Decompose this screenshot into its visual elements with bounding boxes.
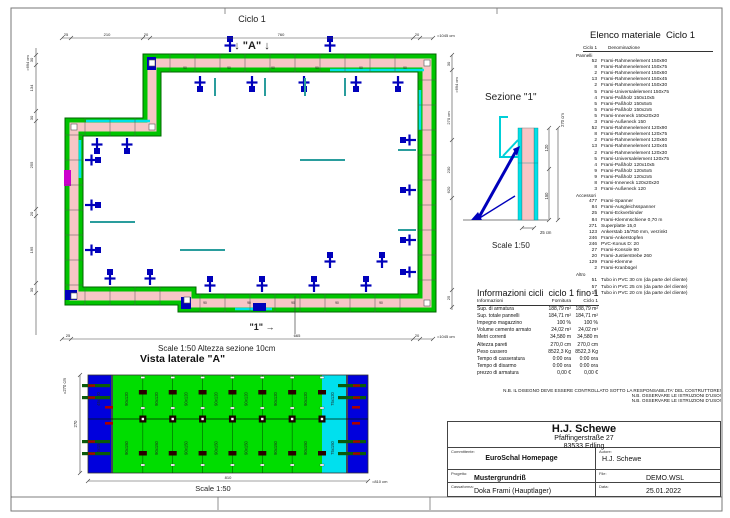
lateral-view: 90x12090x15090x12090x15090x12090x15090x1… <box>62 373 388 493</box>
svg-text:90: 90 <box>403 66 407 70</box>
tie-symbol <box>400 235 416 246</box>
info-col-ciclo: Ciclo 1 <box>571 298 598 305</box>
svg-text:90: 90 <box>227 66 231 70</box>
lateral-scale: Scale 1:50 <box>195 484 230 493</box>
title-block-header: H.J. Schewe Pfaffingerstraße 27 83533 Ed… <box>448 422 720 448</box>
svg-text:90: 90 <box>379 301 383 305</box>
svg-text:760: 760 <box>278 32 285 37</box>
cycle-info-row: Sup. di armatura188,79 m²188,79 m² <box>477 306 599 313</box>
svg-text:20: 20 <box>415 32 420 37</box>
section-1-marker: "1" → <box>249 322 274 332</box>
svg-text:90x150: 90x150 <box>273 440 278 454</box>
tie-symbol <box>85 155 101 166</box>
wall-concrete <box>74 63 427 303</box>
svg-text:=1045 cm: =1045 cm <box>437 33 455 38</box>
project-cell: Progetto: Mustergrundriß <box>448 470 595 483</box>
tie-symbol <box>105 269 116 285</box>
svg-text:90: 90 <box>335 301 339 305</box>
dim-bottom-labels: 25 665 20 =1045 cm <box>66 333 456 339</box>
svg-text:20: 20 <box>144 32 149 37</box>
lateral-dim-left <box>78 373 82 475</box>
material-list: Elenco materiale Ciclo 1 Ciclo 1 Denomin… <box>576 30 726 297</box>
tie-symbol <box>85 200 101 211</box>
svg-text:90x150: 90x150 <box>124 440 129 454</box>
dim-top-labels: 25 210 20 760 20 =1045 cm <box>64 32 456 38</box>
svg-text:90: 90 <box>315 66 319 70</box>
magenta-element <box>64 170 71 186</box>
dim-left-line <box>34 48 38 335</box>
wall-section <box>522 128 534 220</box>
sezione-dim-labels: 120 150 270 cm 25 cm <box>540 113 565 235</box>
svg-text:210: 210 <box>104 32 111 37</box>
tie-symbol <box>400 267 416 278</box>
formwork-right <box>534 128 538 220</box>
svg-text:90x120: 90x120 <box>243 391 248 405</box>
tie-symbol <box>247 76 258 92</box>
panel-joint-ticks <box>65 54 436 312</box>
wall-formwork-green <box>74 63 427 303</box>
svg-text:=694 cm: =694 cm <box>454 77 459 93</box>
brace-lines <box>90 78 416 250</box>
svg-text:90x150: 90x150 <box>154 440 159 454</box>
file-value: DEMO.WSL <box>596 470 720 482</box>
formwork-cell: Cassaforma: Doka Frami (Hauptlager) <box>448 483 595 496</box>
svg-text:25: 25 <box>446 295 451 300</box>
svg-text:20: 20 <box>29 211 34 216</box>
file-cell: File: DEMO.WSL <box>596 470 720 483</box>
cycle-info-header: Informazioni Fornitura Ciclo 1 <box>477 298 599 306</box>
svg-text:=694 cm: =694 cm <box>25 55 30 71</box>
svg-text:25 cm: 25 cm <box>540 230 552 235</box>
project-value: Mustergrundriß <box>448 470 595 482</box>
tie-symbol <box>122 138 133 154</box>
cycle-info-row: Volume cemento armato24,02 m³24,02 m³ <box>477 327 599 334</box>
blue-end-block-4 <box>253 303 266 311</box>
svg-text:90x120: 90x120 <box>154 391 159 405</box>
panel-width-labels: 9090909090909090909090 <box>183 66 407 305</box>
svg-text:25: 25 <box>64 32 69 37</box>
info-col-fornitura: Fornitura <box>541 298 571 305</box>
svg-text:230: 230 <box>446 166 451 173</box>
wall-formwork-edge <box>74 63 427 303</box>
svg-text:90x150: 90x150 <box>303 440 308 454</box>
svg-text:90x150: 90x150 <box>214 440 219 454</box>
svg-text:134: 134 <box>29 84 34 91</box>
tie-symbol <box>361 276 372 292</box>
svg-text:150: 150 <box>544 192 549 200</box>
cycle-info-rows: Sup. di armatura188,79 m²188,79 m²Sup. t… <box>477 306 599 377</box>
sezione-view: Sezione "1" <box>463 92 565 250</box>
svg-text:90: 90 <box>203 301 207 305</box>
title-block: H.J. Schewe Pfaffingerstraße 27 83533 Ed… <box>447 421 721 497</box>
wall-tie-symbols <box>85 36 416 292</box>
project-label: Progetto: <box>451 471 467 476</box>
cycle-info-row: Sup. totale pannelli184,71 m²184,71 m² <box>477 313 599 320</box>
warning-notes: N.B. IL DISEGNO DEVE ESSERE CONTROLLATO … <box>421 388 721 404</box>
svg-text:90: 90 <box>183 66 187 70</box>
svg-text:=1045 cm: =1045 cm <box>437 334 455 339</box>
client-label: Committente: <box>451 449 475 454</box>
svg-text:30: 30 <box>446 61 451 66</box>
tie-symbol <box>400 135 416 146</box>
tie-symbol <box>205 276 216 292</box>
svg-text:270 cm: 270 cm <box>560 113 565 127</box>
client-value: EuroSchal Homepage <box>485 455 557 462</box>
date-label: Data: <box>599 484 609 489</box>
svg-text:90: 90 <box>247 301 251 305</box>
tie-symbol <box>377 252 388 268</box>
svg-text:90x150: 90x150 <box>184 440 189 454</box>
lateral-height-seg: 270 <box>73 420 78 428</box>
svg-text:620: 620 <box>446 186 451 193</box>
tie-symbol <box>400 185 416 196</box>
material-list-header: Ciclo 1 Denominazione <box>583 45 713 52</box>
svg-text:120: 120 <box>544 144 549 152</box>
tie-symbol <box>257 276 268 292</box>
material-list-title: Elenco materiale Ciclo 1 <box>590 30 726 41</box>
svg-text:270 cm: 270 cm <box>446 111 451 125</box>
cycle-info-row: Metri correnti34,580 m34,580 m <box>477 334 599 341</box>
lateral-height-total: =270 cm <box>62 377 67 394</box>
drawing-sheet: Ciclo 1 ↓ "A" ↓ 9090909090909090909090 <box>0 0 730 518</box>
svg-text:90x120: 90x120 <box>184 391 189 405</box>
dim-right-labels: 30 270 cm 230 620 25 =694 cm <box>446 61 459 300</box>
svg-text:75x150: 75x150 <box>330 440 335 454</box>
material-col-name: Denominazione <box>608 45 640 50</box>
tie-symbol <box>92 138 103 154</box>
cycle-info-row: Impegno magazzino100 %100 % <box>477 320 599 327</box>
cycle-info-row: Tempo di casseratura0:00 ora0:00 ora <box>477 356 599 363</box>
formwork-label: Cassaforma: <box>451 484 474 489</box>
corner-anchors <box>71 60 430 306</box>
tie-symbol <box>309 276 320 292</box>
company-address1: Pfaffingerstraße 27 <box>448 435 720 443</box>
svg-text:30: 30 <box>29 115 34 120</box>
cycle-info-row: Altezza pareti270,0 cm270,0 cm <box>477 342 599 349</box>
date-cell: Data: 25.01.2022 <box>596 483 720 496</box>
svg-text:90x120: 90x120 <box>273 391 278 405</box>
tie-symbol <box>325 252 336 268</box>
tie-symbol <box>393 76 404 92</box>
company-name: H.J. Schewe <box>448 422 720 435</box>
svg-text:75x120: 75x120 <box>330 391 335 405</box>
client-cell: Committente: EuroSchal Homepage <box>448 448 595 470</box>
svg-text:90x150: 90x150 <box>243 440 248 454</box>
lateral-width: 810 <box>225 475 232 480</box>
svg-text:20: 20 <box>415 333 420 338</box>
info-col-label: Informazioni <box>477 298 541 305</box>
lateral-width-total: =810 cm <box>372 479 388 484</box>
date-value: 25.01.2022 <box>596 483 720 495</box>
cycle-info-row: Peso cassero8522,3 Kg8522,3 Kg <box>477 349 599 356</box>
svg-text:255: 255 <box>29 161 34 168</box>
tie-symbol <box>195 76 206 92</box>
dim-bottom-line <box>60 337 435 341</box>
svg-text:90x120: 90x120 <box>124 391 129 405</box>
plan-view: Ciclo 1 ↓ "A" ↓ 9090909090909090909090 <box>25 14 459 353</box>
plan-title: Ciclo 1 <box>238 14 266 24</box>
tie-symbol <box>145 269 156 285</box>
svg-text:90: 90 <box>291 301 295 305</box>
tie-symbol <box>85 245 101 256</box>
svg-text:25: 25 <box>66 333 71 338</box>
push-pull-props <box>471 146 520 220</box>
tie-symbol <box>351 76 362 92</box>
sezione-scale: Scale 1:50 <box>492 241 530 250</box>
material-col-cycle: Ciclo 1 <box>583 45 601 50</box>
cycle-info: Informazioni cicli ciclo 1 fino 1 Inform… <box>477 288 599 377</box>
author-cell: Autore: H.J. Schewe <box>596 448 720 470</box>
warning-note-line: N.B. OSSERVARE LE ISTRUZIONI D'USO! <box>421 398 721 403</box>
svg-text:90: 90 <box>359 66 363 70</box>
svg-text:195: 195 <box>29 246 34 253</box>
material-rows: Pannelli52Frami-Rahmenelement 150x908Fra… <box>576 53 726 297</box>
svg-text:90x120: 90x120 <box>303 391 308 405</box>
vista-heading: Vista laterale "A" <box>140 353 225 365</box>
plan-scale-note: Scale 1:50 Altezza sezione 10cm <box>158 344 276 353</box>
cycle-info-row: Tempo di disarmo0:00 ora0:00 ora <box>477 363 599 370</box>
formwork-left <box>518 128 522 220</box>
author-value: H.J. Schewe <box>596 448 720 463</box>
svg-text:90x120: 90x120 <box>214 391 219 405</box>
cycle-info-row: prezzo di armatura0,00 €0,00 € <box>477 370 599 377</box>
cycle-info-title: Informazioni cicli ciclo 1 fino 1 <box>477 288 599 298</box>
section-a-marker: ↓ "A" ↓ <box>234 40 270 52</box>
sezione-title: Sezione "1" <box>485 92 537 103</box>
tie-symbol <box>325 36 336 52</box>
svg-text:30: 30 <box>29 287 34 292</box>
author-label: Autore: <box>599 449 612 454</box>
dim-left-labels: 30 134 30 255 20 195 30 =694 cm <box>25 55 34 293</box>
svg-text:90: 90 <box>271 66 275 70</box>
file-label: File: <box>599 471 607 476</box>
